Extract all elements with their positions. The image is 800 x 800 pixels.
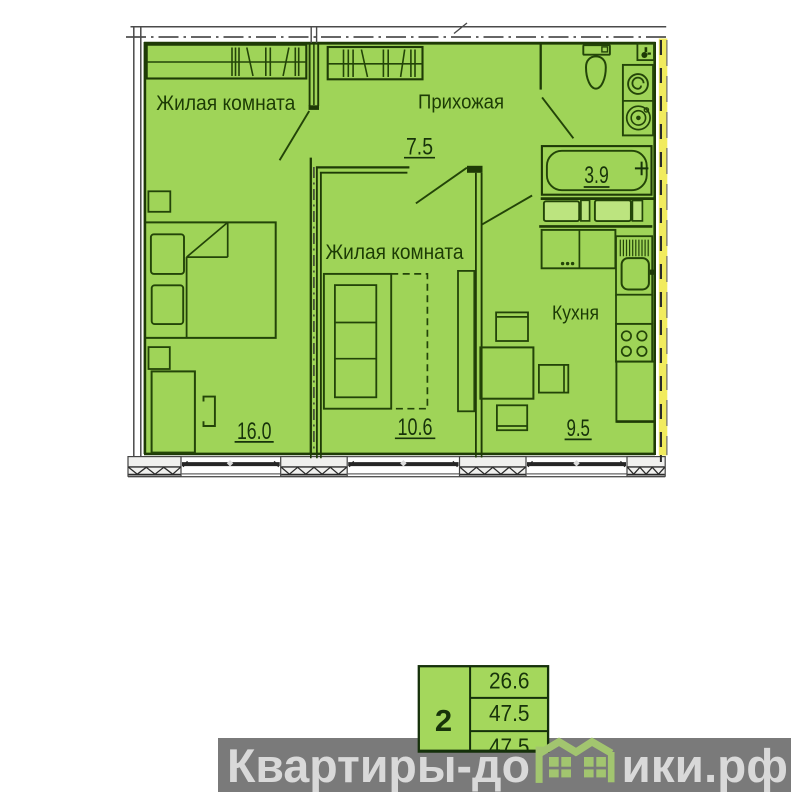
- svg-text:16.0: 16.0: [237, 418, 272, 445]
- svg-text:7.5: 7.5: [406, 133, 433, 160]
- svg-text:10.6: 10.6: [398, 414, 433, 441]
- svg-text:Прихожая: Прихожая: [418, 90, 504, 113]
- svg-text:3.9: 3.9: [584, 162, 609, 189]
- svg-text:9.5: 9.5: [566, 415, 590, 442]
- svg-text:26.6: 26.6: [489, 668, 530, 694]
- svg-text:Жилая комната: Жилая комната: [326, 240, 464, 264]
- svg-text:Квартиры-до: Квартиры-до: [227, 739, 530, 792]
- svg-text:47.5: 47.5: [489, 700, 530, 726]
- svg-text:Жилая комната: Жилая комната: [156, 91, 295, 115]
- svg-text:2: 2: [435, 703, 452, 738]
- svg-text:Кухня: Кухня: [552, 302, 599, 324]
- svg-text:ики.рф: ики.рф: [622, 739, 789, 792]
